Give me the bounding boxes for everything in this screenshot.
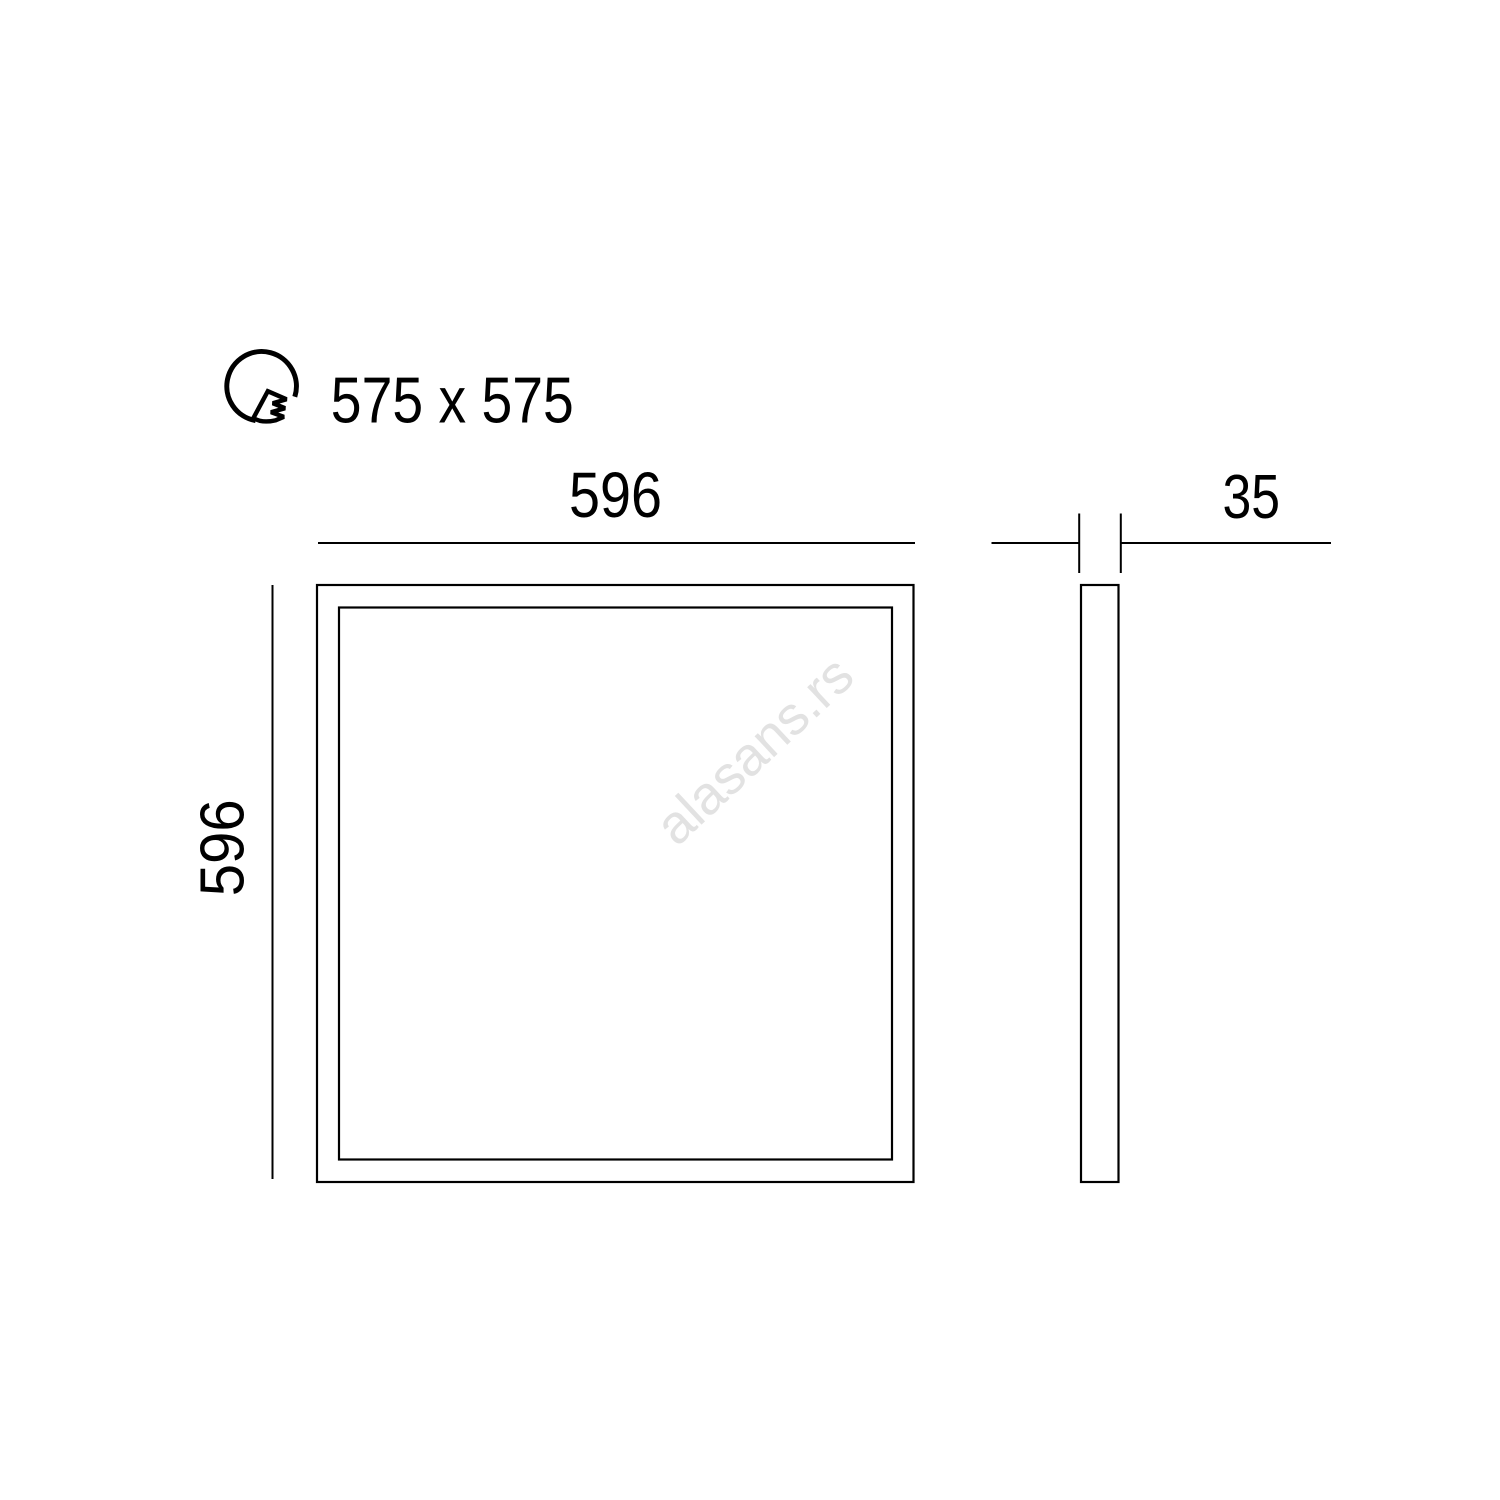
svg-text:596: 596 [569, 459, 662, 531]
svg-text:575 x 575: 575 x 575 [331, 364, 574, 437]
svg-text:596: 596 [188, 799, 257, 896]
svg-text:35: 35 [1223, 463, 1281, 532]
